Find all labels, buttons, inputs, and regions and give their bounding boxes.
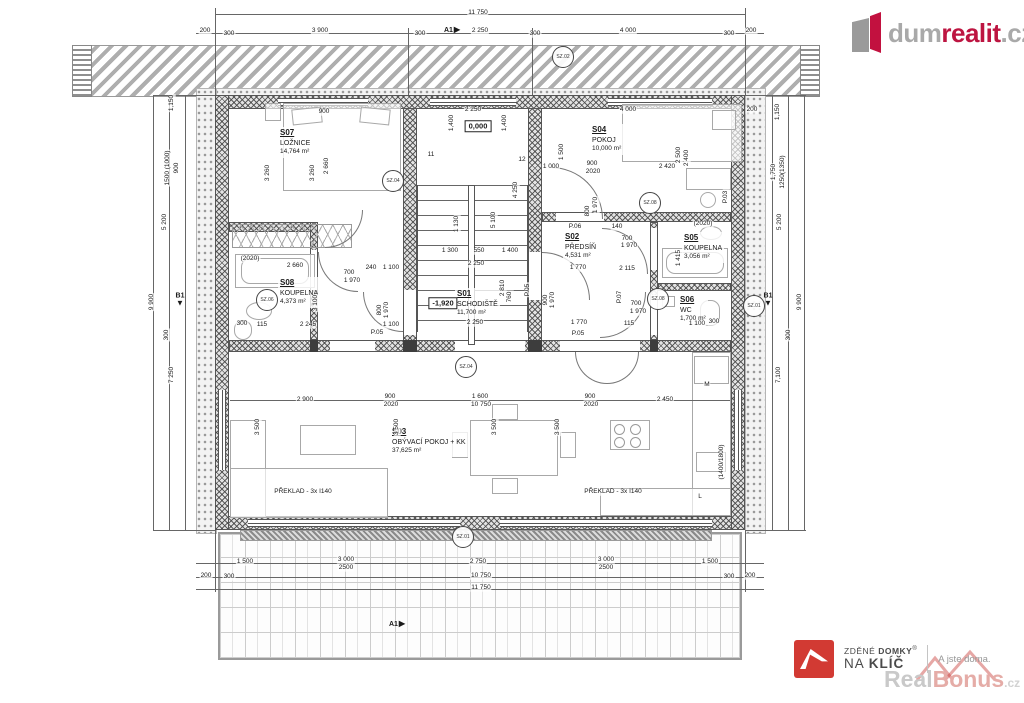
room-name: KOUPELNA	[684, 244, 722, 253]
extension-line	[745, 95, 806, 96]
room-label-s08: S08 KOUPELNA 4,373 m²	[278, 277, 320, 308]
dimension-label: P.06	[568, 224, 583, 231]
window	[218, 390, 226, 470]
dimension-label: 200	[200, 573, 213, 580]
window	[248, 519, 460, 527]
kitchen-sink	[696, 452, 726, 472]
room-label-s03: S03 OBÝVACÍ POKOJ + KK 37,625 m²	[390, 426, 468, 457]
dimension-label: 1,150	[775, 103, 782, 121]
wall-stair-right	[528, 108, 542, 345]
window	[734, 390, 742, 470]
dimension-label: 300	[786, 329, 793, 342]
dimension-line	[215, 14, 745, 15]
room-name: WC	[680, 306, 706, 315]
dimension-label: 5 200	[162, 213, 169, 231]
insulation-strip-left	[196, 88, 217, 534]
window	[500, 519, 712, 527]
floor-plan-sheet: S07 LOŽNICE 14,764 m² S04 POKOJ 10,000 m…	[0, 0, 1024, 703]
room-name: PŘEDSÍŇ	[565, 243, 596, 252]
room-name: OBÝVACÍ POKOJ + KK	[392, 438, 466, 447]
room-label-s07: S07 LOŽNICE 14,764 m²	[278, 127, 312, 158]
dimension-line	[169, 95, 170, 530]
room-label-s02: S02 PŘEDSÍŇ 4,531 m²	[563, 231, 598, 262]
room-id: S06	[680, 295, 706, 306]
dimension-label: 1 770	[570, 320, 588, 327]
extension-line	[532, 28, 533, 95]
room-name: KOUPELNA	[280, 289, 318, 298]
roof-logo-icon	[794, 640, 834, 678]
pier	[403, 340, 417, 352]
door-opening	[330, 341, 375, 351]
insulation-strip-right	[745, 88, 766, 534]
brand-gray-text: dum	[888, 18, 941, 48]
door-swing	[551, 167, 603, 219]
dimension-label: P.03	[723, 190, 730, 205]
dimension-label: 7,100	[776, 366, 783, 384]
washbasin	[246, 302, 272, 320]
desk	[686, 168, 731, 190]
burner-icon	[614, 437, 625, 448]
dimension-label: 300	[529, 31, 542, 38]
dumrealit-logo: dumrealit.cz	[852, 12, 1024, 54]
dimension-line	[196, 33, 764, 34]
room-area: 3,056 m²	[684, 253, 722, 262]
dimension-label: 3 260	[265, 164, 272, 182]
chair	[492, 404, 518, 420]
reference-circle-marker: SZ.04	[455, 356, 477, 378]
dimension-line	[196, 589, 764, 590]
wall-s05-s06	[658, 283, 731, 291]
dimension-line	[230, 400, 730, 401]
registered-mark: ®	[912, 646, 917, 652]
dimension-label: 1250(1350)	[780, 154, 787, 189]
door-opening	[455, 341, 525, 351]
room-id: S01	[457, 289, 498, 300]
extension-line	[745, 530, 806, 531]
extension-line	[153, 530, 215, 531]
burner-icon	[614, 424, 625, 435]
dumrealit-wordmark: dumrealit.cz	[888, 20, 1024, 46]
fridge	[694, 356, 729, 384]
window	[430, 98, 516, 106]
dimension-label: 11 750	[467, 10, 488, 17]
builder-wordmark: ZDĚNÉ DOMKY® NA KLÍČ	[844, 646, 917, 671]
icon-gray-part	[852, 18, 869, 52]
watermark-tld-text: .cz	[1004, 676, 1020, 690]
room-label-s05: S05 KOUPELNA 3,056 m²	[682, 232, 724, 263]
dimension-line	[804, 95, 805, 530]
room-id: S03	[392, 427, 466, 438]
room-area: 37,625 m²	[392, 447, 466, 456]
door-swing	[325, 210, 363, 248]
room-area: 4,531 m²	[565, 252, 596, 261]
room-name: POKOJ	[592, 136, 621, 145]
door-swing	[607, 352, 639, 384]
extension-line	[408, 28, 409, 95]
door-opening	[651, 295, 657, 335]
kitchen-counter	[600, 488, 731, 516]
dimension-label: 115	[256, 322, 268, 329]
brand-tld-text: .cz	[1001, 18, 1024, 48]
chair	[492, 478, 518, 494]
room-label-s04: S04 POKOJ 10,000 m²	[590, 124, 623, 155]
dimension-line	[196, 577, 764, 578]
dimension-label: 1 500	[559, 143, 566, 161]
divider	[927, 645, 928, 673]
dimension-label: 9 900	[149, 293, 156, 311]
sofa	[230, 468, 388, 518]
chair	[700, 192, 716, 208]
builder-line2-bold: KLÍČ	[869, 656, 905, 671]
room-id: S04	[592, 125, 621, 136]
insulation-strip-bottom	[240, 530, 712, 541]
door-swing	[318, 252, 358, 292]
brand-red-text: realit	[941, 18, 1000, 48]
room-name: LOŽNICE	[280, 139, 310, 148]
terrace-paving	[218, 532, 742, 660]
washbasin	[662, 296, 675, 307]
dimension-label: 11	[427, 152, 436, 159]
staircase-stringer	[468, 185, 475, 345]
extension-line	[215, 8, 216, 95]
dimension-label: 900	[174, 162, 181, 175]
dimension-line	[153, 95, 154, 530]
dimension-label: 2 420	[658, 164, 676, 171]
dimension-label: 300	[223, 31, 236, 38]
cooktop	[610, 420, 650, 450]
dimension-label: 9 900	[797, 293, 804, 311]
dimension-label: 1,400	[449, 114, 456, 132]
dimension-line	[196, 563, 764, 564]
dimension-label: 300	[723, 31, 736, 38]
room-id: S07	[280, 128, 310, 139]
dimension-line	[788, 95, 789, 530]
reference-circle-marker: SZ.08	[639, 192, 661, 214]
room-id: S08	[280, 278, 318, 289]
room-name: SCHODIŠTĚ	[457, 300, 498, 309]
dimension-label: 5 200	[777, 213, 784, 231]
door-swing	[602, 228, 648, 274]
dimension-label: 2020	[585, 169, 601, 176]
icon-red-part	[870, 12, 881, 53]
pier	[650, 340, 658, 352]
tagline: A jste doma.	[938, 654, 990, 665]
dimension-line	[185, 95, 186, 530]
pillow	[359, 106, 391, 125]
coffee-table	[300, 425, 356, 455]
door-swing	[363, 292, 403, 332]
axis-flag-marker: B1▼	[176, 293, 185, 308]
roof-glyph-icon	[800, 649, 828, 669]
level-label: 0,000	[465, 120, 492, 132]
door-opening	[529, 252, 541, 300]
extension-line	[215, 530, 216, 592]
room-area: 1,700 m²	[680, 315, 706, 324]
room-id: S05	[684, 233, 722, 244]
door-swing	[575, 352, 607, 384]
pier	[528, 340, 542, 352]
dimension-label: P.05	[370, 330, 385, 337]
pillow	[712, 110, 736, 130]
door-opening	[560, 341, 640, 351]
band-end-cap	[72, 45, 92, 97]
burner-icon	[630, 424, 641, 435]
dimension-label: 900	[586, 161, 599, 168]
dimension-label: 2020	[583, 402, 599, 409]
dimension-label: 1,400	[502, 114, 509, 132]
extension-line	[153, 95, 215, 96]
door-opening	[651, 228, 657, 270]
pier	[310, 340, 318, 352]
room-id: S02	[565, 232, 596, 243]
dimension-label: 10 750	[470, 402, 492, 409]
burner-icon	[630, 437, 641, 448]
extension-line	[745, 530, 746, 592]
door-opening	[404, 290, 416, 335]
dimension-label: 1500 (1000)	[165, 149, 172, 186]
room-area: 14,764 m²	[280, 148, 310, 157]
room-label-s01: S01 SCHODIŠTĚ 11,700 m²	[455, 288, 500, 319]
dimension-label: 240	[365, 265, 378, 272]
dining-table	[470, 420, 558, 476]
pillow	[291, 106, 323, 125]
nightstand	[265, 103, 281, 121]
toilet	[234, 320, 252, 340]
room-area: 10,000 m²	[592, 145, 621, 154]
chair	[560, 432, 576, 458]
dimension-label: 2020	[383, 402, 399, 409]
dimension-label: 1 100	[382, 265, 400, 272]
dimension-line	[772, 95, 773, 530]
room-label-s06: S06 WC 1,700 m²	[678, 294, 708, 325]
door-swing	[600, 292, 646, 338]
room-area: 11,700 m²	[457, 309, 498, 318]
room-area: 4,373 m²	[280, 298, 318, 307]
builder-line2-light: NA	[844, 656, 864, 671]
extension-line	[745, 8, 746, 95]
band-end-cap	[800, 45, 820, 97]
dimension-label: 300	[414, 31, 427, 38]
dimension-label: 12	[517, 157, 526, 164]
dimension-label: P.05	[571, 331, 586, 338]
dumrealit-building-icon	[852, 12, 882, 54]
builder-logo: ZDĚNÉ DOMKY® NA KLÍČ A jste doma.	[794, 640, 991, 678]
